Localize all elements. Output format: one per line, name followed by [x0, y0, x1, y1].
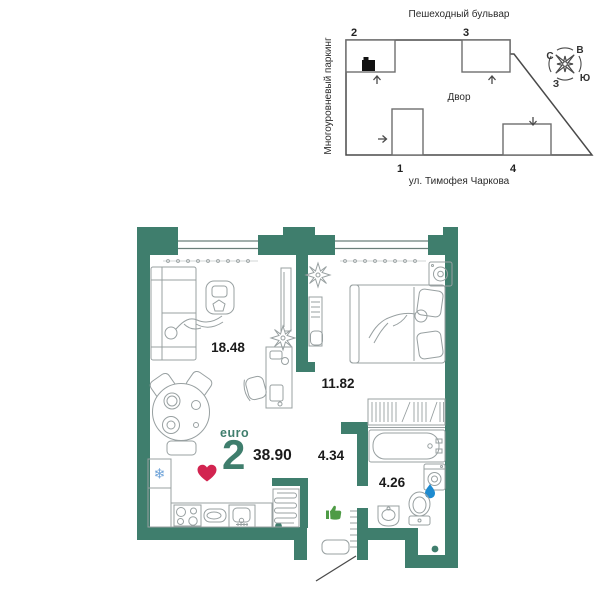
bathroom-sink — [378, 506, 399, 526]
desk — [242, 347, 292, 408]
total-area: 38.90 — [253, 447, 292, 464]
snowflake-icon: ❄ — [154, 466, 166, 482]
bathroom-area-label: 4.26 — [379, 475, 406, 490]
apartment-type-block: euro 2 38.90 — [220, 426, 292, 478]
compass-south: Ю — [580, 73, 590, 84]
wardrobe — [368, 399, 445, 428]
building-1-label: 1 — [397, 163, 403, 175]
bathroom-door-leaf — [350, 511, 357, 547]
cutting-board — [204, 509, 226, 522]
fridge: ❄ — [148, 459, 171, 488]
doormat — [322, 540, 349, 554]
floor-plan: ❄ — [137, 227, 458, 581]
dining-table — [148, 369, 213, 455]
building-3-label: 3 — [463, 27, 469, 39]
tv — [281, 268, 291, 331]
room-count: 2 — [222, 431, 245, 478]
kitchen-counter — [148, 488, 272, 527]
washing-machine — [424, 464, 445, 490]
building-2-label: 2 — [351, 27, 357, 39]
stove — [174, 505, 201, 526]
window-living — [178, 241, 258, 249]
coffee-table — [206, 281, 234, 314]
building-1 — [392, 109, 423, 155]
kitchen-sink — [229, 505, 255, 527]
bathtub — [369, 430, 445, 462]
compass-east: В — [576, 45, 583, 56]
compass-rose-icon: С В З Ю — [546, 45, 590, 90]
desk-chair — [242, 375, 267, 402]
radiator-unit — [273, 489, 299, 527]
arrow-up-icon — [374, 76, 381, 84]
door-pivot-dot — [275, 523, 282, 530]
bedroom-area-label: 11.82 — [321, 376, 354, 391]
parking-label: Многоуровневый паркинг — [323, 37, 334, 155]
building-4 — [503, 124, 551, 155]
building-4-label: 4 — [510, 163, 517, 175]
door-pivot-dot — [432, 546, 439, 553]
bed — [350, 285, 445, 363]
street-top-label: Пешеходный бульвар — [409, 8, 510, 20]
site-plan: Пешеходный бульвар ул. Тимофея Чаркова М… — [323, 8, 592, 187]
arrow-right-icon — [378, 136, 387, 143]
compass-north: С — [546, 51, 553, 62]
plant-icon — [271, 326, 295, 350]
arrow-up-icon — [489, 76, 496, 84]
plant-icon — [306, 263, 330, 287]
floorplan-image: Пешеходный бульвар ул. Тимофея Чаркова М… — [0, 0, 600, 600]
water-drop-icon — [425, 484, 435, 498]
building-3 — [462, 40, 510, 72]
hallway-area-label: 4.34 — [318, 448, 345, 463]
window-bedroom — [335, 241, 428, 249]
dresser — [309, 297, 323, 346]
compass-west: З — [553, 79, 559, 90]
courtyard-label: Двор — [447, 92, 471, 103]
floorplan-page: Пешеходный бульвар ул. Тимофея Чаркова М… — [0, 0, 600, 600]
person-sitting — [165, 316, 223, 339]
entrance-door-swing — [316, 556, 356, 581]
thumbs-up-icon — [326, 506, 341, 520]
living-area-label: 18.48 — [211, 340, 245, 355]
curtain-rails — [163, 260, 426, 263]
heart-icon — [198, 465, 217, 482]
street-bottom-label: ул. Тимофея Чаркова — [409, 175, 510, 187]
